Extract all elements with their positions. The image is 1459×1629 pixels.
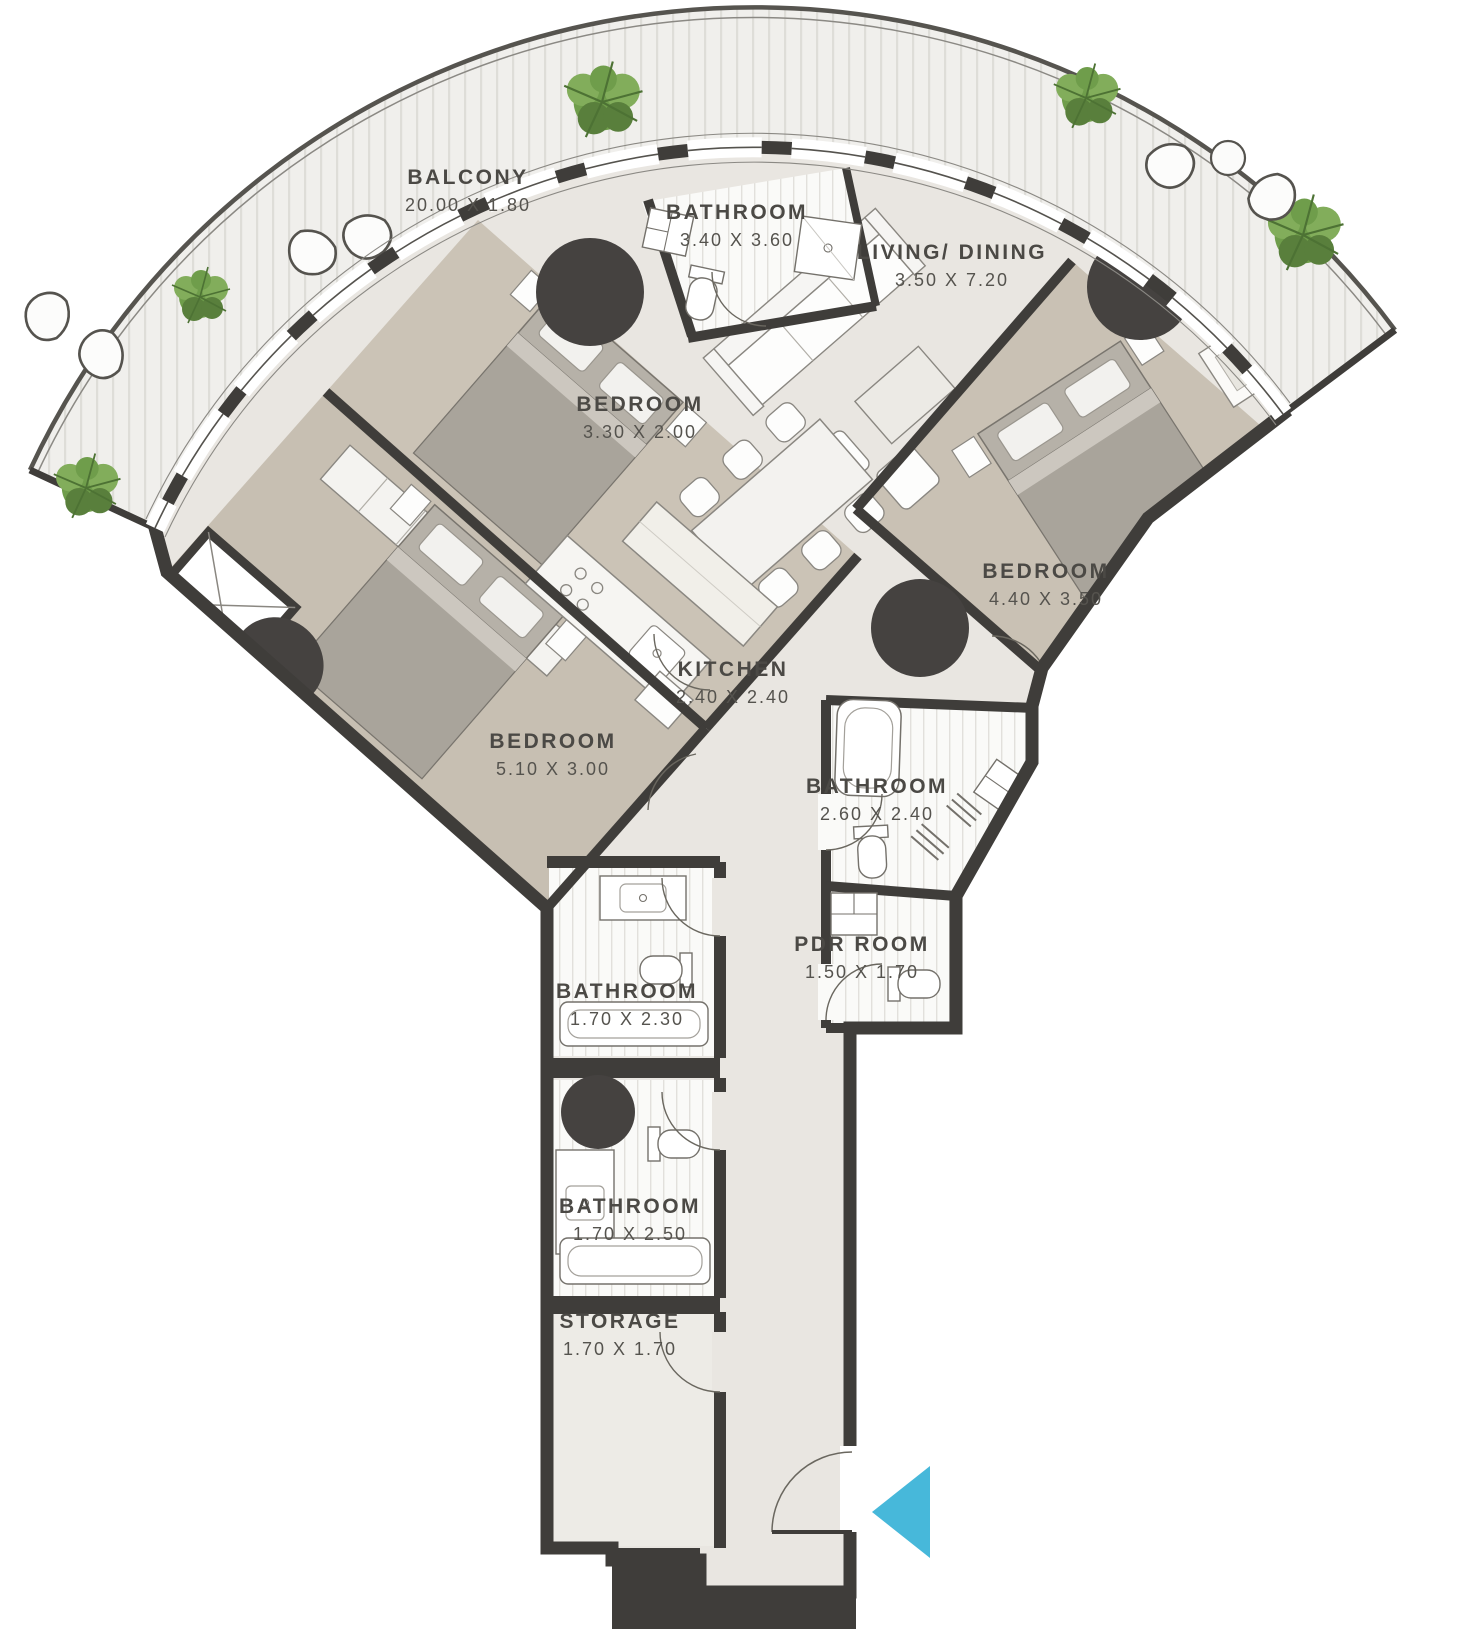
room-label-bathroom1-dims: 1.70 X 2.30 [570, 1009, 684, 1029]
column-icon [871, 579, 969, 677]
room-label-bedroom3-name: BEDROOM [982, 560, 1109, 583]
balcony-stool-icon [1211, 141, 1245, 175]
room-label-bedroom1-dims: 3.30 X 2.00 [583, 422, 697, 442]
sink-icon [831, 893, 877, 935]
core-wall-block [612, 1548, 700, 1629]
toilet-icon [648, 1127, 700, 1161]
room-label-living-dining-dims: 3.50 X 7.20 [895, 270, 1009, 290]
column-icon [536, 238, 644, 346]
column-icon [561, 1075, 635, 1149]
room-label-bathroom1-name: BATHROOM [556, 980, 698, 1003]
room-label-pdr-room-name: PDR ROOM [794, 933, 930, 956]
bathtub-icon [560, 1238, 710, 1284]
room-label-bedroom2-dims: 5.10 X 3.00 [496, 759, 610, 779]
core-wall-block [694, 1588, 856, 1629]
shower-icon [794, 216, 861, 280]
entrance-opening [840, 1446, 860, 1532]
room-label-bedroom2-name: BEDROOM [489, 730, 616, 753]
room-label-bathroom2-name: BATHROOM [559, 1195, 701, 1218]
room-label-storage-name: STORAGE [560, 1310, 681, 1333]
room-label-kitchen-name: KITCHEN [678, 658, 789, 681]
room-label-balcony-dims: 20.00 X 1.80 [405, 195, 531, 215]
room-label-bedroom3-dims: 4.40 X 3.50 [989, 589, 1103, 609]
apartment-interior [145, 147, 1287, 1592]
room-label-living-dining-name: LIVING/ DINING [857, 241, 1047, 264]
room-label-bathroom-top-name: BATHROOM [666, 201, 808, 224]
entrance-arrow-icon [872, 1466, 930, 1558]
room-label-bedroom1-name: BEDROOM [576, 393, 703, 416]
room-label-pdr-room-dims: 1.50 X 1.70 [805, 962, 919, 982]
room-label-storage-dims: 1.70 X 1.70 [563, 1339, 677, 1359]
room-label-balcony-name: BALCONY [407, 166, 528, 189]
floor-plan-page: BALCONY 20.00 X 1.80 BATHROOM 3.40 X 3.6… [0, 0, 1459, 1629]
floor-plan-svg: BALCONY 20.00 X 1.80 BATHROOM 3.40 X 3.6… [0, 0, 1459, 1629]
vanity-icon [600, 876, 686, 920]
room-label-bathroom-right-dims: 2.60 X 2.40 [820, 804, 934, 824]
balcony-chair-icon [20, 287, 74, 344]
room-label-bathroom-top-dims: 3.40 X 3.60 [680, 230, 794, 250]
room-label-bathroom-right-name: BATHROOM [806, 775, 948, 798]
room-label-kitchen-dims: 2.40 X 2.40 [676, 687, 790, 707]
room-label-bathroom2-dims: 1.70 X 2.50 [573, 1224, 687, 1244]
